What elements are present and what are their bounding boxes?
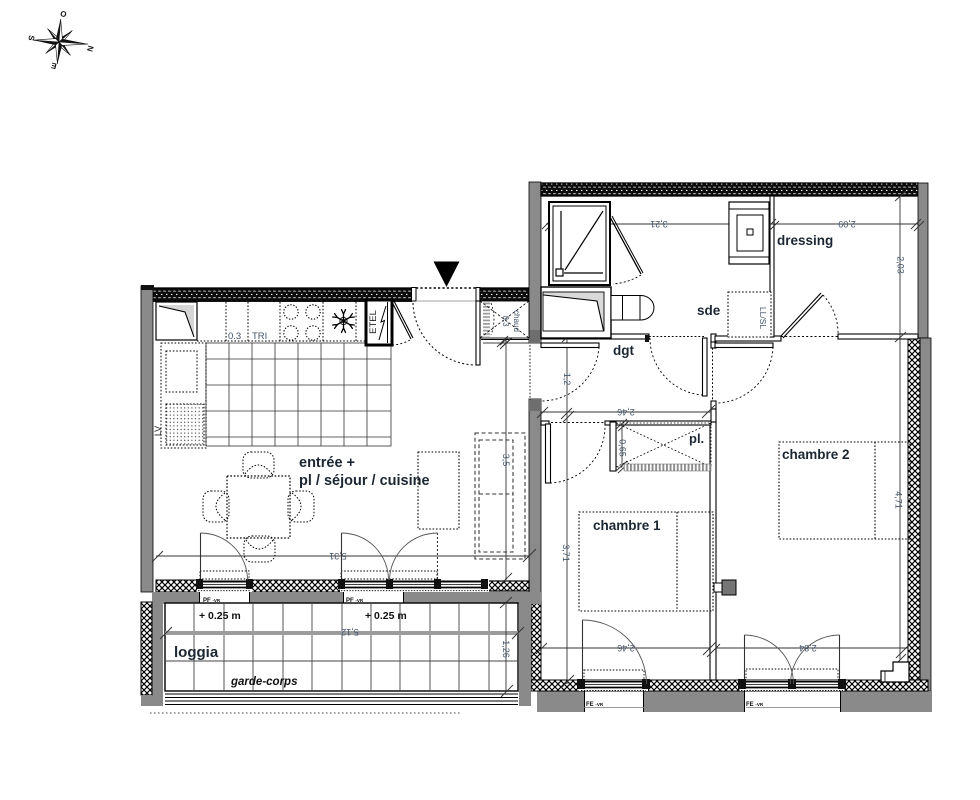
svg-text:LV: LV xyxy=(153,426,163,436)
svg-text:2,46: 2,46 xyxy=(617,643,635,653)
svg-text:dgt: dgt xyxy=(613,343,634,358)
svg-text:0.3: 0.3 xyxy=(228,331,241,342)
svg-text:loggia: loggia xyxy=(174,644,219,661)
svg-text:pl / séjour / cuisine: pl / séjour / cuisine xyxy=(299,473,430,489)
svg-text:0,65: 0,65 xyxy=(618,439,628,457)
svg-text:chambre 2: chambre 2 xyxy=(782,447,850,462)
svg-text:3,71: 3,71 xyxy=(561,544,571,562)
svg-text:ETEL: ETEL xyxy=(368,310,379,334)
svg-text:4,71: 4,71 xyxy=(894,491,904,509)
svg-text:0.3: 0.3 xyxy=(501,315,510,327)
svg-text:sde: sde xyxy=(697,303,721,318)
svg-text:dressing: dressing xyxy=(777,233,833,248)
svg-text:LL/SL: LL/SL xyxy=(758,307,768,329)
svg-text:3,5: 3,5 xyxy=(501,454,511,467)
svg-text:2,46: 2,46 xyxy=(617,407,635,417)
svg-text:+ 0.25 m: + 0.25 m xyxy=(365,610,407,622)
svg-text:3,21: 3,21 xyxy=(650,219,668,229)
svg-text:1,2: 1,2 xyxy=(562,373,572,386)
svg-text:2,09: 2,09 xyxy=(838,219,856,229)
svg-text:+ 0.25 m: + 0.25 m xyxy=(199,610,241,622)
svg-text:chambre 1: chambre 1 xyxy=(593,518,661,533)
svg-text:1,26: 1,26 xyxy=(501,640,511,658)
svg-text:2,84: 2,84 xyxy=(799,643,817,653)
svg-text:TRI: TRI xyxy=(252,331,267,342)
svg-text:5,31: 5,31 xyxy=(329,551,347,561)
svg-text:entrée +: entrée + xyxy=(299,455,355,471)
svg-text:5,12: 5,12 xyxy=(341,627,359,637)
svg-text:pl.: pl. xyxy=(689,431,704,446)
svg-text:garde-corps: garde-corps xyxy=(230,676,297,688)
svg-text:2,03: 2,03 xyxy=(896,256,906,274)
svg-text:chaud: chaud xyxy=(512,310,521,332)
